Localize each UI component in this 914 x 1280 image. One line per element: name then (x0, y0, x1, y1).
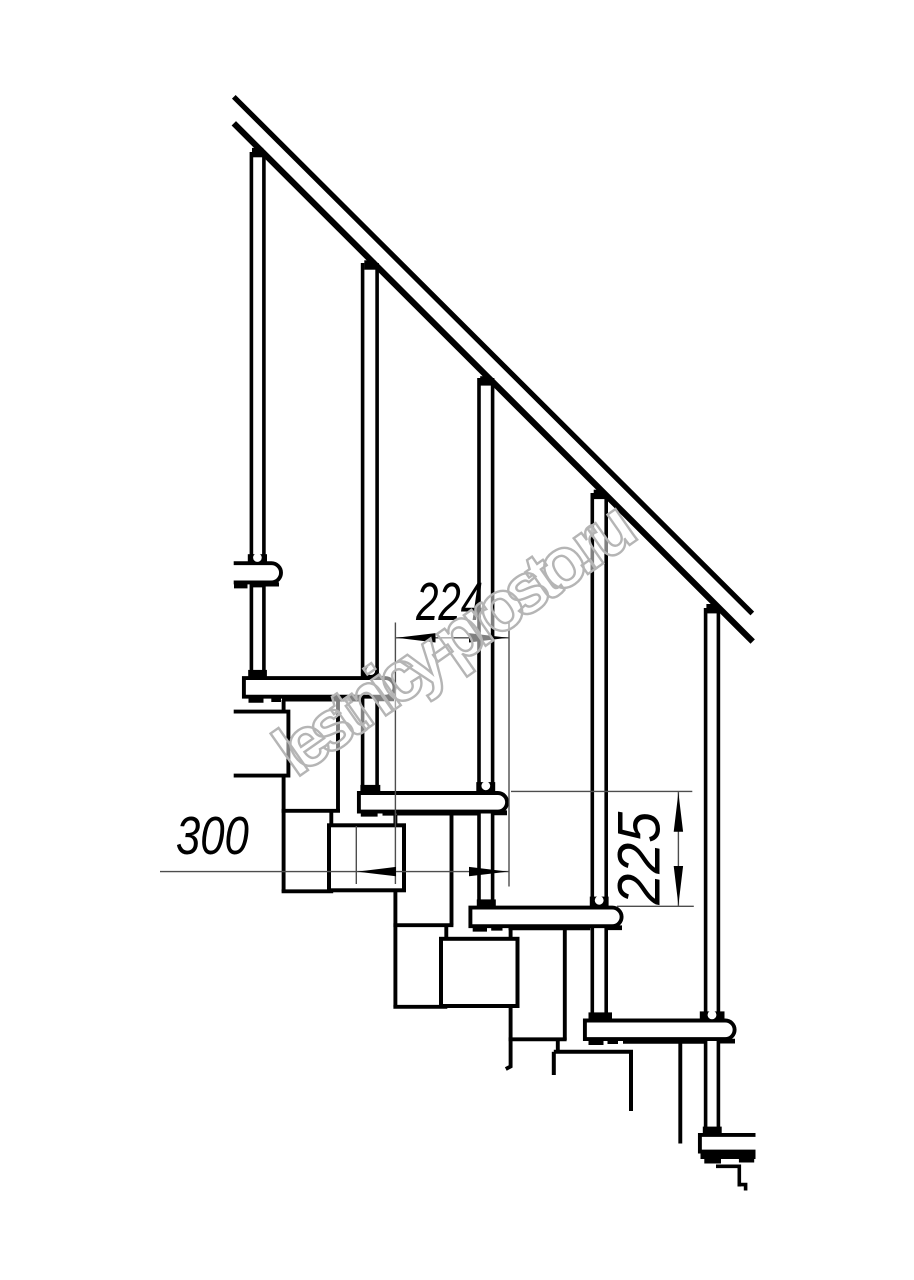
svg-text:300: 300 (176, 806, 249, 866)
svg-text:225: 225 (606, 811, 673, 906)
